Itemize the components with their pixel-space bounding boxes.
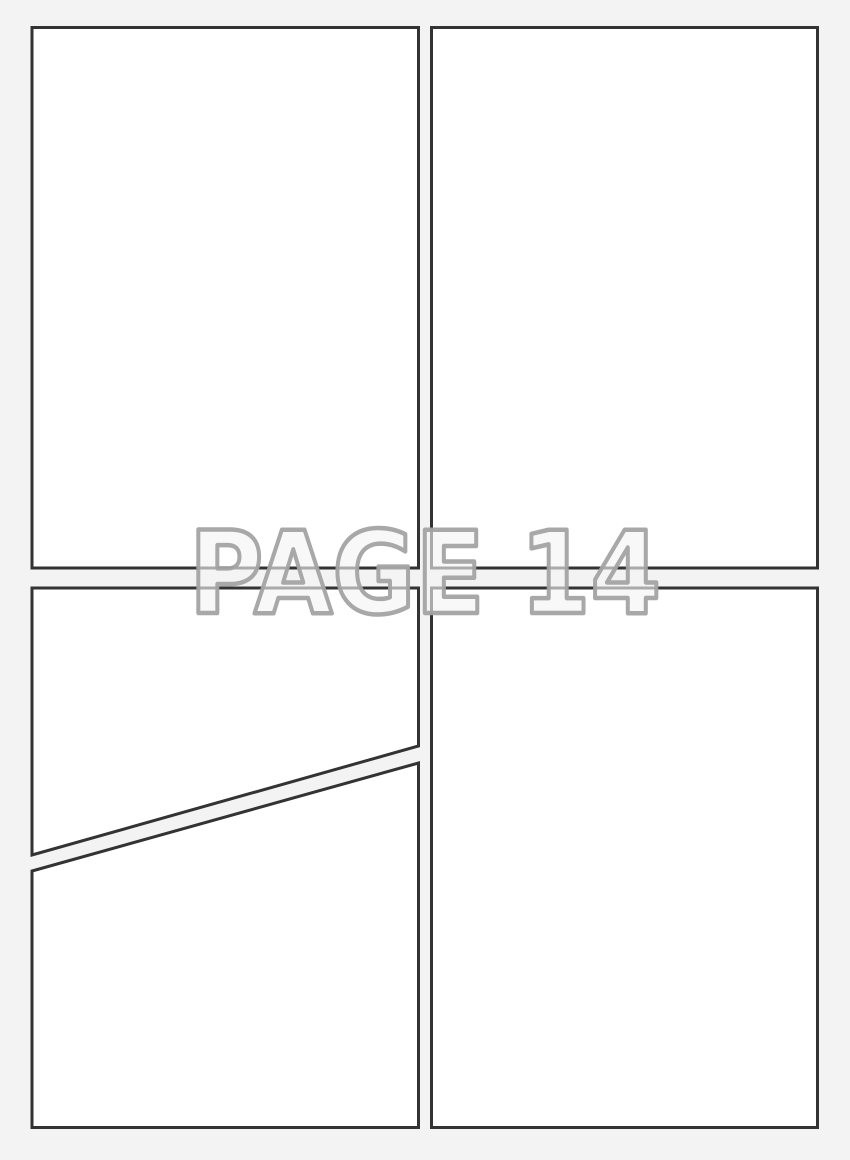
comic-page-template: PAGE 14 [0,0,850,1160]
page-number-label: PAGE 14 [189,507,661,640]
panel-bottom-right [432,588,818,1128]
panel-layout: PAGE 14 [0,0,850,1160]
panel-top-right [432,28,818,569]
panel-top-left [32,28,419,569]
